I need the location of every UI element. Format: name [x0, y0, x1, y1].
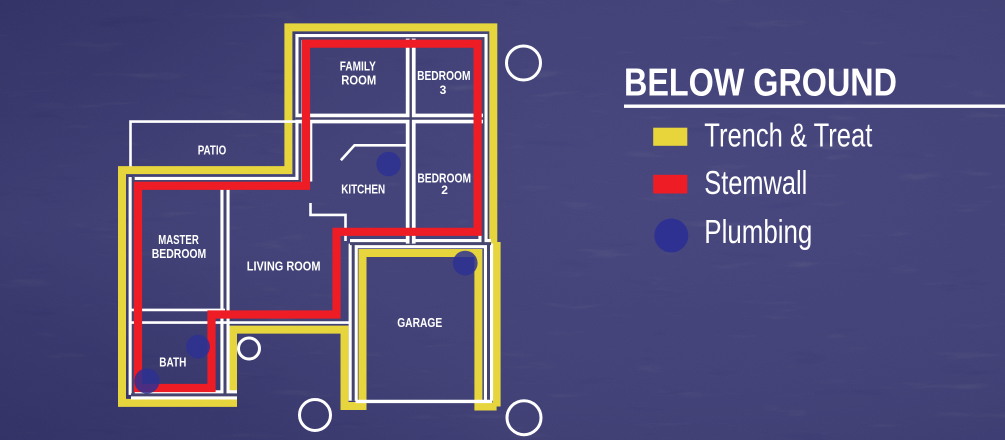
svg-text:LIVING ROOM: LIVING ROOM: [247, 260, 321, 274]
svg-text:3: 3: [440, 83, 447, 97]
svg-text:GARAGE: GARAGE: [397, 316, 442, 330]
svg-text:Stemwall: Stemwall: [704, 164, 807, 201]
svg-text:Plumbing: Plumbing: [704, 213, 812, 250]
svg-text:PATIO: PATIO: [198, 144, 227, 158]
svg-text:MASTER: MASTER: [158, 233, 199, 247]
svg-text:KITCHEN: KITCHEN: [341, 182, 385, 196]
svg-text:2: 2: [441, 183, 448, 197]
svg-text:FAMILY: FAMILY: [340, 59, 377, 73]
svg-text:ROOM: ROOM: [341, 74, 376, 88]
svg-text:BEDROOM: BEDROOM: [417, 69, 470, 83]
svg-text:Trench & Treat: Trench & Treat: [704, 117, 872, 154]
svg-text:BELOW GROUND: BELOW GROUND: [624, 62, 897, 105]
svg-text:BEDROOM: BEDROOM: [152, 247, 207, 261]
svg-text:BATH: BATH: [159, 356, 186, 370]
